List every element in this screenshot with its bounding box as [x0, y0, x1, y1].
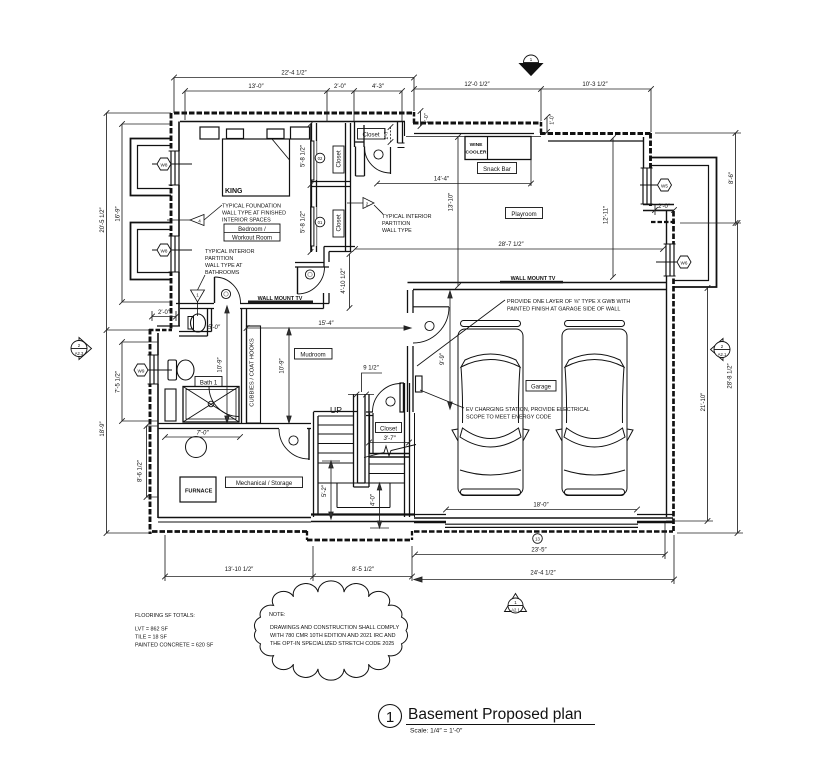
svg-text:Mudroom: Mudroom	[300, 353, 325, 359]
svg-text:Closet: Closet	[380, 427, 397, 433]
svg-text:A2.3: A2.3	[75, 351, 84, 356]
svg-text:THE OPT-IN SPECIALIZED STRETCH: THE OPT-IN SPECIALIZED STRETCH CODE 2025	[270, 641, 394, 647]
svg-text:7′-0″: 7′-0″	[197, 431, 210, 437]
svg-text:W5: W5	[661, 184, 668, 189]
svg-text:13′-10″: 13′-10″	[449, 192, 455, 211]
svg-text:CUBBIES / COAT HOOKS: CUBBIES / COAT HOOKS	[250, 338, 256, 407]
svg-text:5′-8 1/2″: 5′-8 1/2″	[301, 144, 307, 167]
svg-text:2′-0″: 2′-0″	[158, 310, 171, 316]
svg-text:Workout Room: Workout Room	[232, 236, 272, 242]
svg-text:20′-5 1/2″: 20′-5 1/2″	[100, 206, 106, 232]
svg-text:WALL TYPE AT FINISHED: WALL TYPE AT FINISHED	[222, 211, 286, 217]
svg-text:9 1/2″: 9 1/2″	[363, 366, 379, 372]
svg-text:10′-9″: 10′-9″	[218, 356, 224, 372]
svg-text:PAINTED FINISH AT GARAGE SIDE: PAINTED FINISH AT GARAGE SIDE OF WALL	[507, 307, 620, 313]
svg-text:1: 1	[196, 293, 199, 298]
svg-text:22′-4 1/2″: 22′-4 1/2″	[281, 71, 307, 77]
svg-text:Scale: 1/4″ = 1′-0″: Scale: 1/4″ = 1′-0″	[410, 728, 463, 735]
svg-text:EV CHARGING STATION, PROVIDE E: EV CHARGING STATION, PROVIDE ELECTRICAL	[466, 407, 590, 413]
svg-text:INTERIOR SPACES: INTERIOR SPACES	[222, 218, 271, 224]
svg-text:FURNACE: FURNACE	[185, 489, 213, 495]
svg-text:5′-0″: 5′-0″	[208, 325, 221, 331]
svg-text:W8: W8	[161, 163, 168, 168]
svg-text:SCOPE TO MEET ENERGY CODE: SCOPE TO MEET ENERGY CODE	[466, 415, 552, 421]
svg-text:5′-8 1/2″: 5′-8 1/2″	[301, 210, 307, 233]
svg-text:1: 1	[386, 709, 394, 726]
svg-text:PARTITION: PARTITION	[205, 256, 233, 262]
svg-text:2′-0″: 2′-0″	[658, 204, 671, 210]
svg-text:1′-0″: 1′-0″	[424, 113, 430, 123]
svg-text:W9: W9	[138, 369, 145, 374]
svg-text:Bath 1: Bath 1	[200, 381, 218, 387]
svg-text:10′-3 1/2″: 10′-3 1/2″	[582, 82, 608, 88]
svg-text:LVT = 862 SF: LVT = 862 SF	[135, 627, 169, 633]
svg-text:10′-9″: 10′-9″	[280, 357, 286, 373]
svg-text:W6: W6	[681, 261, 688, 266]
svg-text:PARTITION: PARTITION	[382, 221, 410, 227]
svg-text:13: 13	[535, 537, 540, 542]
svg-text:4′-3″: 4′-3″	[372, 84, 385, 90]
svg-text:TYPICAL INTERIOR: TYPICAL INTERIOR	[382, 214, 432, 220]
svg-text:28′-7 1/2″: 28′-7 1/2″	[498, 242, 524, 248]
svg-text:WINE: WINE	[470, 142, 484, 148]
svg-text:BATHROOMS: BATHROOMS	[205, 270, 240, 276]
svg-text:8′-6″: 8′-6″	[729, 171, 735, 184]
svg-text:FLOORING SF TOTALS:: FLOORING SF TOTALS:	[135, 613, 195, 619]
svg-text:Garage: Garage	[531, 385, 552, 391]
svg-text:18′-0″: 18′-0″	[533, 503, 549, 509]
svg-text:Closet: Closet	[362, 133, 379, 139]
svg-text:8′-5 1/2″: 8′-5 1/2″	[352, 567, 375, 573]
svg-text:7′-5 1/2″: 7′-5 1/2″	[116, 370, 122, 393]
svg-text:2: 2	[366, 202, 369, 207]
svg-text:02: 02	[318, 156, 323, 161]
svg-text:UP: UP	[330, 405, 342, 415]
svg-text:9′-9″: 9′-9″	[440, 352, 446, 365]
svg-text:24′-4 1/2″: 24′-4 1/2″	[530, 571, 556, 577]
svg-text:Snack Bar: Snack Bar	[483, 167, 511, 173]
svg-text:DRAWINGS AND CONSTRUCTION SHAL: DRAWINGS AND CONSTRUCTION SHALL COMPLY	[270, 625, 400, 631]
svg-text:01: 01	[318, 220, 323, 225]
svg-text:2′-0″: 2′-0″	[334, 84, 347, 90]
svg-text:23′-5″: 23′-5″	[531, 548, 547, 554]
svg-text:3′-7″: 3′-7″	[384, 436, 397, 442]
svg-text:12′-0 1/2″: 12′-0 1/2″	[464, 82, 490, 88]
svg-text:18′-9″: 18′-9″	[100, 420, 106, 436]
svg-text:5′-2″: 5′-2″	[322, 484, 328, 497]
svg-text:WALL TYPE AT: WALL TYPE AT	[205, 263, 243, 269]
svg-text:PAINTED CONCRETE = 620 SF: PAINTED CONCRETE = 620 SF	[135, 643, 214, 649]
svg-text:Closet: Closet	[337, 150, 343, 167]
svg-text:4′-10 1/2″: 4′-10 1/2″	[341, 267, 347, 293]
svg-text:4: 4	[198, 219, 201, 224]
svg-text:4′-0″: 4′-0″	[371, 493, 377, 506]
svg-text:12′-11″: 12′-11″	[604, 205, 610, 224]
svg-text:Basement Proposed plan: Basement Proposed plan	[408, 706, 582, 723]
svg-text:A2.1: A2.1	[511, 608, 520, 613]
svg-text:8′-6 1/2″: 8′-6 1/2″	[138, 459, 144, 482]
svg-text:28′-8 1/2″: 28′-8 1/2″	[728, 362, 734, 388]
svg-text:W8: W8	[161, 249, 168, 254]
svg-text:NOTE:: NOTE:	[269, 612, 285, 618]
svg-text:TYPICAL FOUNDATION: TYPICAL FOUNDATION	[222, 204, 281, 210]
svg-text:Mechanical / Storage: Mechanical / Storage	[236, 481, 293, 487]
svg-text:16′-9″: 16′-9″	[116, 205, 122, 221]
svg-text:TYPICAL INTERIOR: TYPICAL INTERIOR	[205, 249, 255, 255]
svg-text:15′-4″: 15′-4″	[318, 321, 334, 327]
svg-text:Playroom: Playroom	[511, 212, 536, 218]
svg-text:Closet: Closet	[337, 214, 343, 231]
svg-text:21′-10″: 21′-10″	[701, 392, 707, 411]
svg-text:A2.2: A2.2	[527, 65, 536, 70]
svg-text:COOLER: COOLER	[466, 150, 487, 156]
svg-text:TILE = 18 SF: TILE = 18 SF	[135, 635, 168, 641]
svg-text:13′-10 1/2″: 13′-10 1/2″	[225, 567, 254, 573]
svg-text:14′-4″: 14′-4″	[434, 177, 450, 183]
svg-text:A2.1: A2.1	[718, 352, 727, 357]
svg-text:WALL TYPE: WALL TYPE	[382, 228, 412, 234]
svg-text:KING: KING	[225, 188, 243, 195]
svg-text:13′-0″: 13′-0″	[248, 84, 264, 90]
svg-text:1′-0″: 1′-0″	[550, 114, 556, 124]
svg-text:Bedroom /: Bedroom /	[238, 227, 266, 233]
svg-text:WITH 780 CMR 10TH EDITION AND: WITH 780 CMR 10TH EDITION AND 2021 IRC A…	[270, 633, 396, 639]
svg-text:PROVIDE ONE LAYER OF ⅝″ TYPE X: PROVIDE ONE LAYER OF ⅝″ TYPE X GWB WITH	[507, 299, 630, 305]
